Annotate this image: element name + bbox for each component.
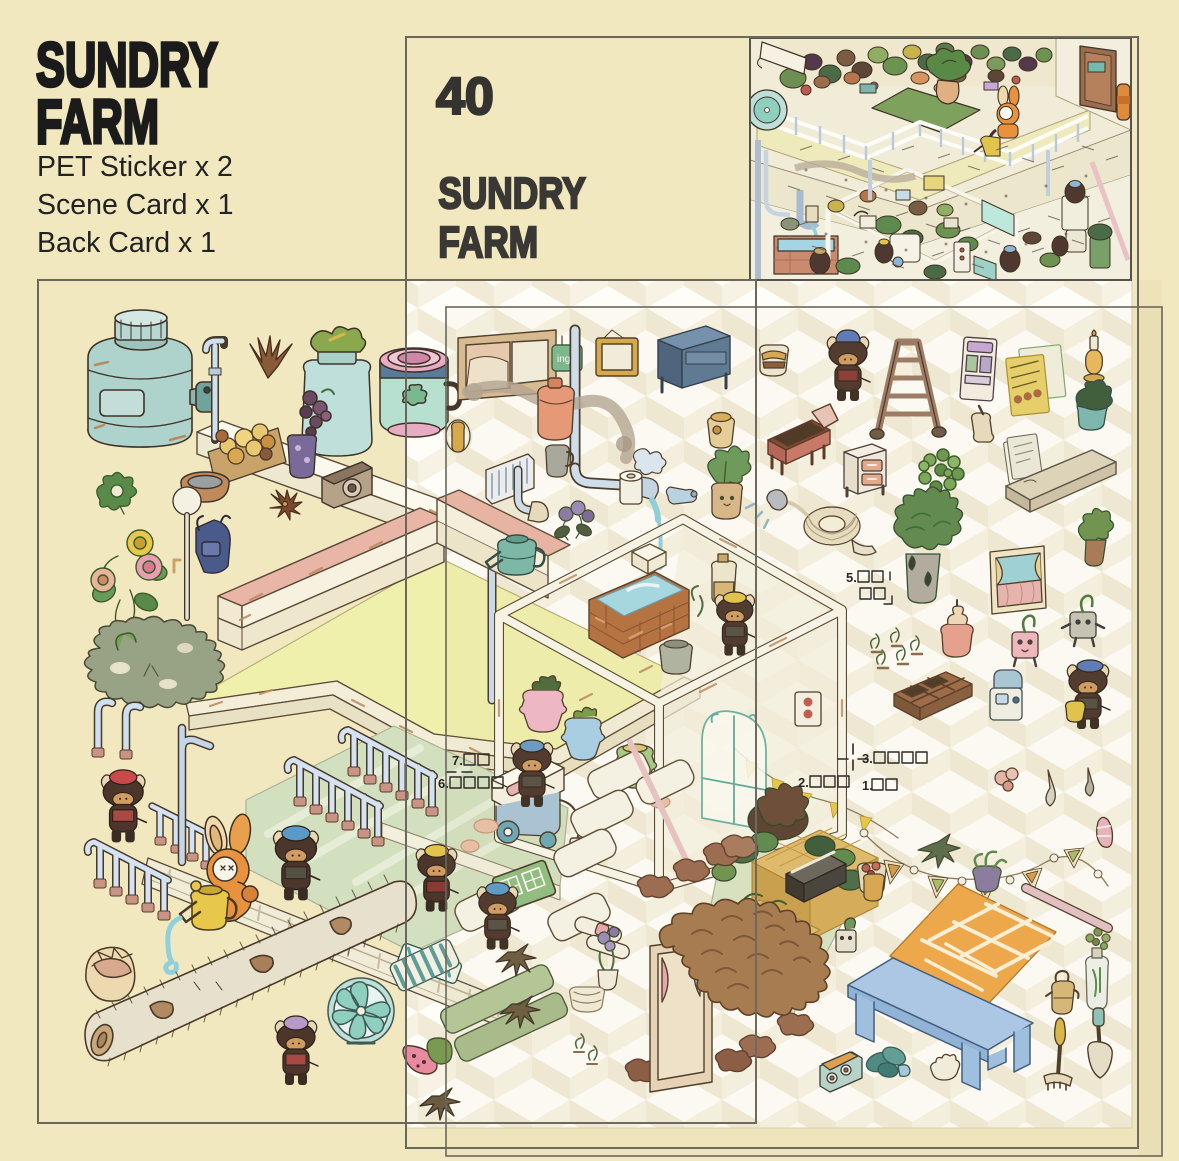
svg-text:FARM: FARM <box>36 89 159 157</box>
svg-text:Scene Card x 1: Scene Card x 1 <box>37 189 233 221</box>
svg-text:FARM: FARM <box>438 218 538 267</box>
svg-text:SUNDRY: SUNDRY <box>438 169 585 218</box>
svg-text:40: 40 <box>436 68 494 126</box>
svg-text:PET Sticker x 2: PET Sticker x 2 <box>37 151 233 183</box>
svg-text:Back Card x 1: Back Card x 1 <box>37 227 216 259</box>
